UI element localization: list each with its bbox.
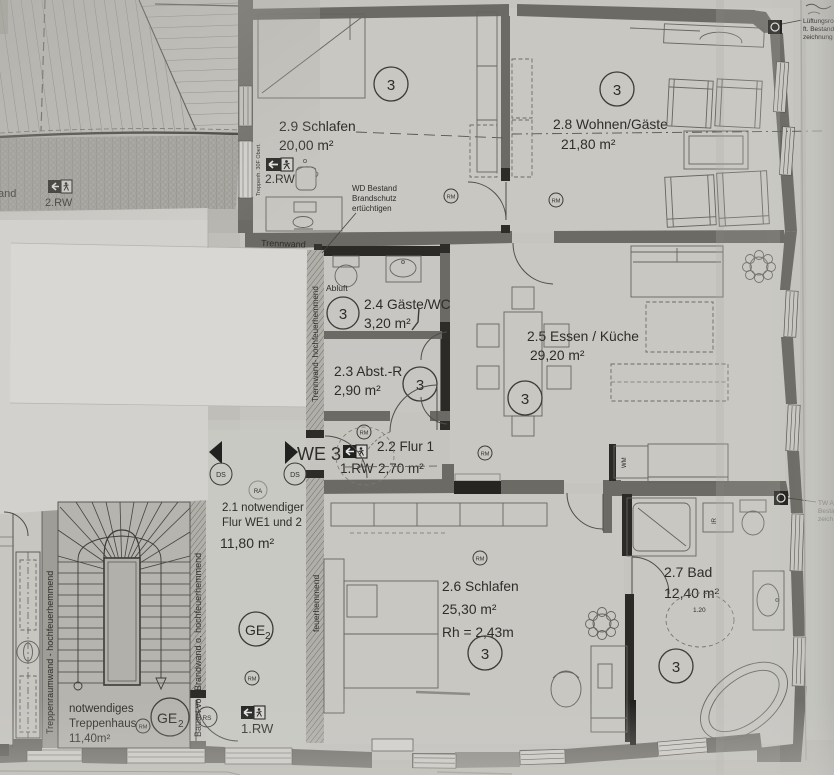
svg-text:RM: RM: [476, 557, 485, 563]
svg-text:2.2 Flur 1: 2.2 Flur 1: [377, 439, 434, 454]
svg-text:29,20 m²: 29,20 m²: [530, 348, 585, 363]
svg-text:2.6 Schlafen: 2.6 Schlafen: [442, 579, 519, 594]
svg-text:RA: RA: [254, 489, 262, 495]
svg-text:25,30 m²: 25,30 m²: [442, 602, 497, 617]
svg-text:DS: DS: [216, 472, 226, 479]
svg-text:3: 3: [416, 377, 424, 394]
svg-text:RM: RM: [552, 199, 561, 205]
svg-text:RM: RM: [248, 677, 257, 683]
svg-text:RM: RM: [481, 452, 490, 458]
svg-text:2.5 Essen / Küche: 2.5 Essen / Küche: [527, 329, 639, 344]
svg-text:3,20 m²: 3,20 m²: [364, 316, 411, 331]
svg-text:Flur WE1 und 2: Flur WE1 und 2: [222, 517, 302, 529]
svg-text:1.RW: 1.RW: [340, 461, 374, 476]
svg-text:3: 3: [521, 391, 529, 408]
svg-text:11,80 m²: 11,80 m²: [220, 535, 275, 551]
svg-text:12,40 m²: 12,40 m²: [664, 585, 720, 601]
svg-text:WE 3: WE 3: [297, 444, 341, 464]
svg-text:RM: RM: [360, 431, 369, 437]
svg-text:2.1 notwendiger: 2.1 notwendiger: [222, 502, 304, 514]
svg-text:1.20: 1.20: [693, 607, 706, 614]
svg-text:WM: WM: [622, 457, 628, 468]
svg-text:DS: DS: [290, 472, 300, 479]
svg-text:feuerhemmend: feuerhemmend: [311, 575, 321, 632]
svg-text:ertüchtigen: ertüchtigen: [352, 204, 392, 213]
svg-text:2.4 Gäste/WC: 2.4 Gäste/WC: [364, 297, 451, 312]
svg-text:Trennwand: Trennwand: [261, 238, 306, 250]
svg-text:3: 3: [339, 306, 347, 323]
svg-text:Abluft: Abluft: [326, 283, 348, 293]
svg-text:2: 2: [265, 631, 271, 642]
svg-text:Brandschutz: Brandschutz: [352, 194, 396, 203]
svg-text:3: 3: [613, 82, 621, 99]
svg-text:GE: GE: [245, 622, 265, 638]
svg-text:2.3 Abst.-R: 2.3 Abst.-R: [334, 364, 402, 379]
svg-text:RM: RM: [447, 195, 456, 201]
svg-text:Trennwand- hochfeuerhemmend: Trennwand- hochfeuerhemmend: [311, 286, 320, 402]
svg-text:WD Bestand: WD Bestand: [352, 184, 397, 193]
svg-text:3: 3: [672, 659, 680, 676]
svg-text:2.7 Bad: 2.7 Bad: [664, 564, 712, 580]
svg-text:2,70 m²: 2,70 m²: [378, 461, 424, 476]
svg-text:2.8 Wohnen/Gäste: 2.8 Wohnen/Gäste: [553, 117, 668, 132]
svg-text:3: 3: [481, 646, 489, 663]
svg-text:21,80 m²: 21,80 m²: [561, 137, 616, 152]
svg-text:2,90 m²: 2,90 m²: [334, 383, 381, 398]
svg-text:3: 3: [387, 77, 395, 94]
